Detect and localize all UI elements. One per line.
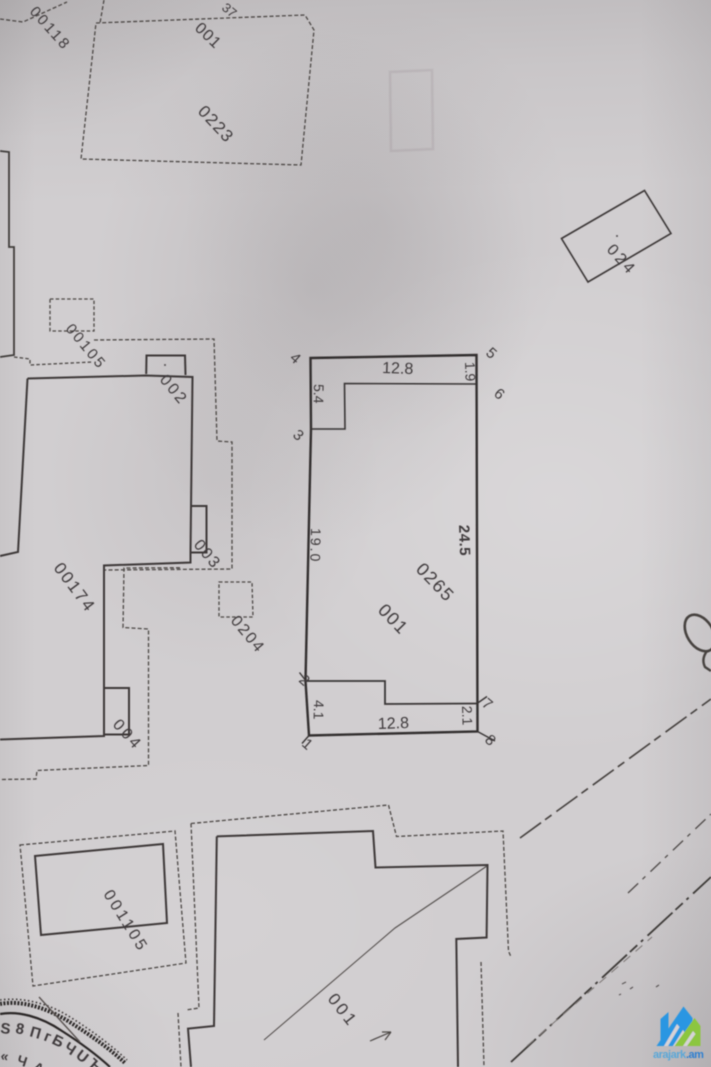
svg-text:003: 003 [190, 537, 224, 573]
svg-text:0265: 0265 [412, 559, 458, 606]
svg-text:5.4: 5.4 [311, 384, 327, 404]
svg-text:.am: .am [686, 1049, 704, 1061]
svg-text:024: 024 [603, 241, 640, 279]
svg-text:001: 001 [374, 600, 412, 639]
svg-text:1: 1 [298, 735, 316, 753]
svg-text:S: S [0, 1020, 11, 1038]
svg-text:12.8: 12.8 [378, 715, 410, 733]
svg-text:A: A [31, 1058, 47, 1067]
svg-text:0223: 0223 [194, 102, 238, 147]
svg-text:00174: 00174 [50, 559, 100, 616]
svg-text:4.1: 4.1 [311, 700, 327, 720]
svg-text:7: 7 [478, 695, 495, 713]
svg-text:001: 001 [191, 20, 224, 53]
svg-text:4: 4 [286, 349, 304, 367]
svg-text:24.5: 24.5 [455, 525, 473, 557]
svg-text:8: 8 [481, 731, 499, 749]
svg-text:001105: 001105 [100, 887, 152, 956]
svg-text:1.9: 1.9 [462, 362, 479, 382]
svg-text:3: 3 [289, 426, 307, 444]
svg-text:5: 5 [482, 344, 500, 362]
svg-text:Ч: Ч [15, 1052, 29, 1067]
svg-text:19.0: 19.0 [307, 528, 324, 564]
svg-text:0204: 0204 [227, 613, 268, 657]
svg-text:00118: 00118 [26, 3, 74, 54]
svg-text:001: 001 [324, 990, 362, 1031]
svg-text:12.8: 12.8 [382, 360, 414, 378]
svg-text:arajark: arajark [653, 1049, 687, 1061]
svg-text:8: 8 [14, 1020, 25, 1038]
svg-text:00105: 00105 [62, 321, 110, 373]
svg-text:«: « [0, 1047, 10, 1064]
svg-text:П: П [28, 1024, 43, 1043]
svg-text:2.1: 2.1 [459, 706, 476, 726]
svg-text:6: 6 [490, 385, 507, 403]
